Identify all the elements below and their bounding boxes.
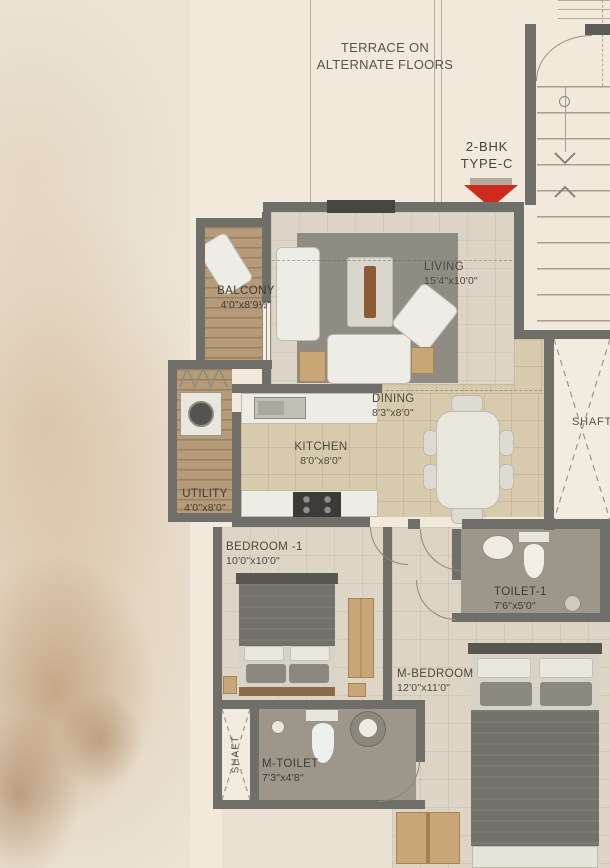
kitchen-sink — [254, 397, 306, 419]
room-dims: 7'6"x5'0" — [494, 600, 547, 613]
wall-segment — [250, 700, 259, 800]
terrace-boundary-line — [310, 0, 311, 203]
room-name: LIVING — [424, 260, 478, 275]
wc-icon — [523, 543, 545, 579]
room-label-living: LIVING 15'4"x10'0" — [424, 260, 478, 288]
wardrobe — [396, 812, 460, 864]
stair-treads — [537, 86, 610, 332]
room-name: BALCONY — [188, 284, 304, 299]
room-label-toilet1: TOILET-1 7'6"x5'0" — [494, 585, 547, 613]
bed-pillow — [539, 658, 593, 678]
room-name: UTILITY — [168, 487, 242, 502]
stair-start-circle-icon — [559, 96, 570, 107]
room-dims: 4'0"x8'0" — [168, 502, 242, 515]
room-dims: 8'3"x8'0" — [372, 407, 415, 420]
room-dims: 15'4"x10'0" — [424, 275, 478, 288]
room-label-kitchen: KITCHEN 8'0"x8'0" — [266, 440, 376, 468]
entry-marker-bar — [470, 178, 512, 185]
shaft-label: SHAFT — [572, 415, 610, 429]
room-name: BEDROOM -1 — [226, 540, 303, 555]
wall-segment — [452, 613, 610, 622]
terrace-boundary-line — [441, 0, 442, 203]
room-label-m-toilet: M-TOILET 7'3"x4'8" — [262, 757, 319, 785]
bed-blanket — [471, 710, 599, 846]
washbasin-icon — [482, 535, 514, 560]
bed-blanket — [239, 584, 335, 646]
dining-floor-upper — [514, 339, 544, 393]
dining-table — [436, 411, 500, 509]
stair-direction-up-icon — [551, 182, 579, 200]
wall-segment — [232, 384, 382, 393]
shaft-label-text: SHAFT — [572, 416, 610, 428]
wall-segment — [544, 339, 554, 530]
dining-chair — [499, 464, 514, 490]
room-dims: 8'0"x8'0" — [266, 455, 376, 468]
room-label-utility: UTILITY 4'0"x8'0" — [168, 487, 242, 515]
room-dims: 12'0"x11'0" — [397, 682, 473, 695]
wall-segment — [168, 360, 272, 369]
floor-plan: TERRACE ON ALTERNATE FLOORS 2-BHK TYPE-C — [0, 0, 610, 868]
wall-segment — [416, 700, 425, 762]
room-label-dining: DINING 8'3"x8'0" — [372, 392, 415, 420]
bed-pillow — [244, 646, 284, 661]
washing-machine-drum — [188, 401, 214, 427]
bed-cushion — [289, 664, 329, 683]
room-name: M-TOILET — [262, 757, 319, 772]
stair-direction-down-icon — [551, 150, 579, 168]
coffee-table — [347, 257, 393, 327]
wc-tank — [518, 531, 550, 543]
dining-chair — [499, 430, 514, 456]
room-name: TOILET-1 — [494, 585, 547, 600]
shower-icon — [271, 720, 285, 734]
terrace-note: TERRACE ON ALTERNATE FLOORS — [312, 40, 458, 73]
wall-segment — [462, 519, 610, 529]
washing-machine-icon — [180, 392, 222, 436]
wc-tank — [305, 709, 339, 722]
bed-bench — [472, 846, 598, 868]
room-label-m-bedroom: M-BEDROOM 12'0"x11'0" — [397, 667, 473, 695]
wall-segment — [232, 517, 370, 527]
bed-cushion — [540, 682, 592, 706]
bed-headboard — [468, 643, 602, 654]
stair-door-leaf — [585, 24, 610, 35]
bed-cushion — [246, 664, 286, 683]
wall-segment — [213, 527, 222, 809]
wall-segment — [196, 218, 271, 227]
lower-strip-floor — [222, 809, 392, 868]
bed-headboard — [236, 573, 338, 584]
shaft-label: SHAFT — [222, 709, 250, 800]
shaft-label-text: SHAFT — [231, 736, 242, 774]
wall-segment — [514, 330, 610, 339]
wall-segment — [213, 700, 425, 709]
unit-type-label: 2-BHK TYPE-C — [446, 139, 528, 172]
room-dims: 7'3"x4'8" — [262, 772, 319, 785]
wall-segment — [213, 800, 425, 809]
sofa — [327, 334, 411, 384]
bed-cushion — [480, 682, 532, 706]
washbasin-icon — [350, 711, 386, 747]
room-label-bedroom1: BEDROOM -1 10'0"x10'0" — [226, 540, 303, 568]
bed-pillow — [290, 646, 330, 661]
wall-segment — [600, 519, 610, 622]
wall-segment — [408, 519, 420, 529]
side-table — [299, 351, 326, 382]
coffee-table-runner — [364, 266, 376, 318]
room-name: DINING — [372, 392, 415, 407]
shower-icon — [564, 595, 581, 612]
room-dims: 10'0"x10'0" — [226, 555, 303, 568]
bed-foot-board — [239, 687, 335, 696]
terrace-note-text: TERRACE ON ALTERNATE FLOORS — [317, 40, 454, 72]
stair-dashed-line — [602, 0, 603, 86]
tv-console — [327, 200, 395, 213]
unit-type-line1: 2-BHK — [446, 139, 528, 156]
shaft-cross-icon — [554, 339, 610, 520]
wardrobe — [348, 598, 374, 678]
stove-hob-icon — [293, 492, 341, 517]
unit-type-line2: TYPE-C — [446, 156, 528, 173]
beam-dashed-line — [386, 390, 542, 391]
washbasin-bowl — [359, 719, 377, 737]
room-name: KITCHEN — [266, 440, 376, 455]
room-dims: 4'0"x8'9½" — [188, 299, 304, 312]
room-label-balcony: BALCONY 4'0"x8'9½" — [188, 284, 304, 312]
wall-segment — [514, 202, 524, 339]
side-table — [411, 347, 434, 374]
room-name: M-BEDROOM — [397, 667, 473, 682]
sink-bowl — [258, 401, 284, 415]
terrace-boundary-line — [434, 0, 435, 203]
nightstand — [348, 683, 366, 697]
bed-pillow — [477, 658, 531, 678]
wall-segment — [525, 24, 536, 205]
nightstand — [223, 676, 237, 694]
